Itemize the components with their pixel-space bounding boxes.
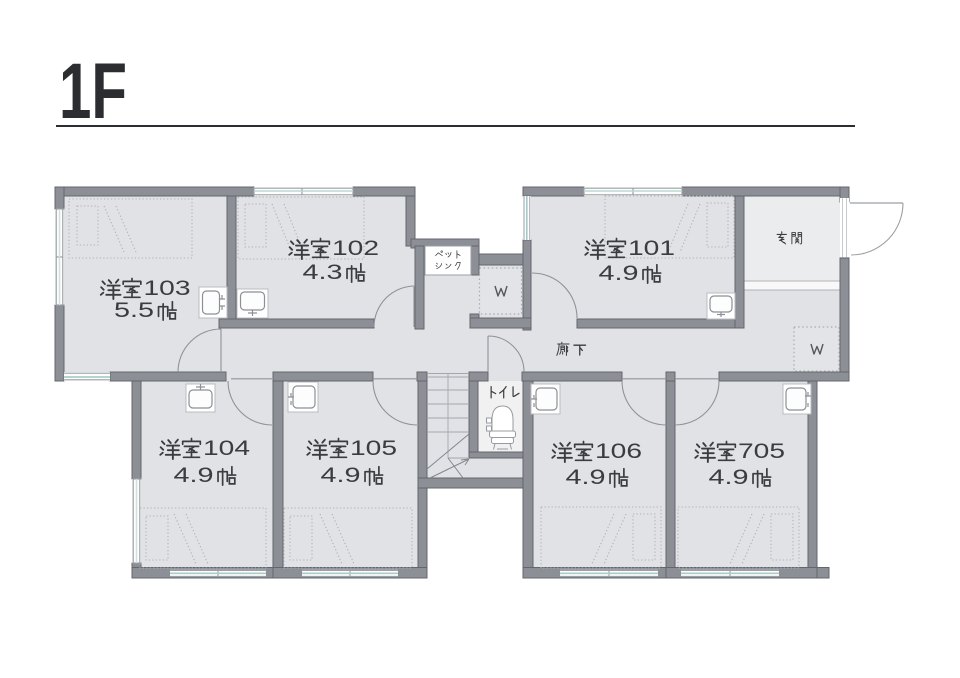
svg-text:106: 106 — [595, 440, 642, 463]
svg-text:103: 103 — [144, 277, 191, 300]
svg-text:4.3: 4.3 — [303, 261, 343, 284]
svg-text:4.9: 4.9 — [566, 466, 606, 489]
svg-text:104: 104 — [203, 437, 250, 460]
svg-text:102: 102 — [332, 237, 379, 260]
svg-text:105: 105 — [350, 437, 397, 460]
svg-text:4.9: 4.9 — [709, 466, 749, 489]
svg-text:5.5: 5.5 — [114, 299, 154, 322]
svg-text:1F: 1F — [59, 46, 127, 135]
svg-text:4.9: 4.9 — [321, 464, 361, 487]
svg-text:4.9: 4.9 — [599, 262, 639, 285]
svg-text:4.9: 4.9 — [174, 464, 214, 487]
svg-text:101: 101 — [628, 237, 675, 260]
svg-text:705: 705 — [738, 440, 785, 463]
